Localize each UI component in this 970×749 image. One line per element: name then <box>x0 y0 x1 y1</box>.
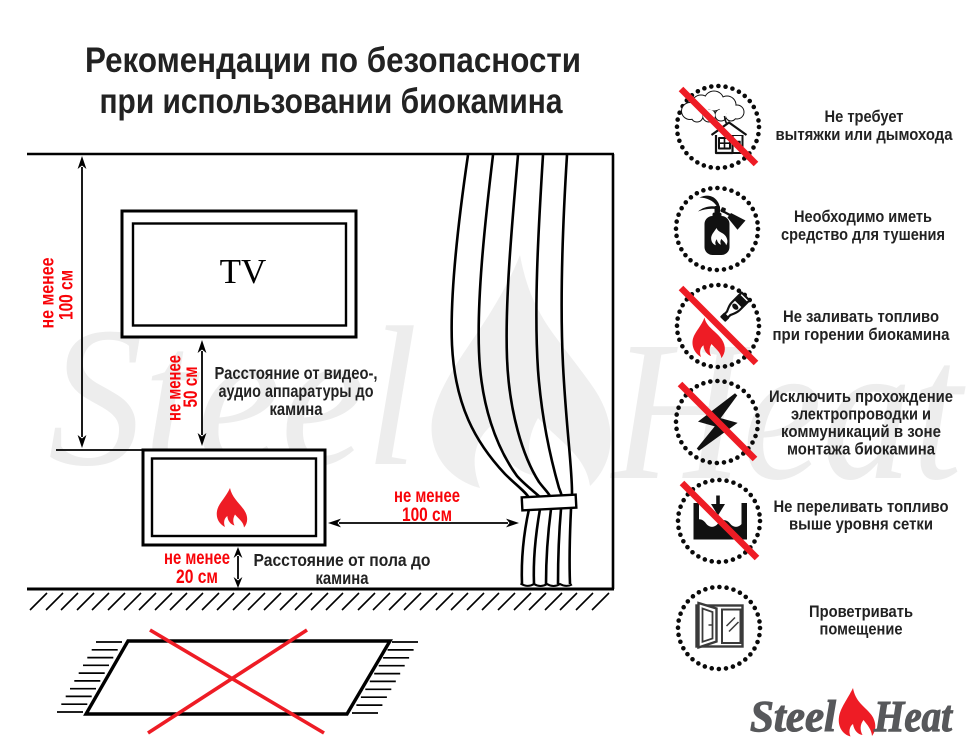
svg-text:аудио аппаратуры до: аудио аппаратуры до <box>219 381 374 401</box>
svg-text:Расстояние от пола до: Расстояние от пола до <box>254 550 431 570</box>
svg-text:Не переливать топливо: Не переливать топливо <box>774 498 949 516</box>
svg-text:не менее: не менее <box>164 548 230 569</box>
svg-text:при использовании биокамина: при использовании биокамина <box>100 82 563 121</box>
svg-text:Не заливать топливо: Не заливать топливо <box>783 308 939 326</box>
svg-text:при горении биокамина: при горении биокамина <box>773 326 951 344</box>
svg-text:20 см: 20 см <box>176 567 218 588</box>
svg-text:камина: камина <box>316 568 369 588</box>
svg-text:помещение: помещение <box>820 621 903 639</box>
svg-text:камина: камина <box>270 399 323 419</box>
svg-text:не менее: не менее <box>38 258 59 329</box>
svg-text:100 см: 100 см <box>402 505 452 526</box>
svg-text:электропроводки и: электропроводки и <box>791 406 931 424</box>
svg-text:Не требует: Не требует <box>825 108 904 126</box>
svg-text:не менее: не менее <box>394 486 460 507</box>
svg-text:TV: TV <box>220 252 267 291</box>
svg-text:Heat: Heat <box>873 692 953 741</box>
svg-text:Steel: Steel <box>750 692 837 741</box>
svg-text:монтажа биокамина: монтажа биокамина <box>787 441 936 459</box>
svg-text:коммуникаций в зоне: коммуникаций в зоне <box>781 423 941 441</box>
svg-text:Необходимо иметь: Необходимо иметь <box>794 208 932 226</box>
svg-text:средство для тушения: средство для тушения <box>781 226 945 244</box>
svg-text:Исключить прохождение: Исключить прохождение <box>769 388 953 406</box>
svg-text:вытяжки или дымохода: вытяжки или дымохода <box>776 126 954 144</box>
svg-text:100 см: 100 см <box>57 270 78 320</box>
svg-text:50 см: 50 см <box>181 367 202 408</box>
svg-text:Расстояние от видео-,: Расстояние от видео-, <box>215 363 378 383</box>
svg-text:Проветривать: Проветривать <box>809 603 913 621</box>
svg-text:Рекомендации по безопасности: Рекомендации по безопасности <box>85 41 581 80</box>
svg-text:выше уровня сетки: выше уровня сетки <box>789 516 933 534</box>
